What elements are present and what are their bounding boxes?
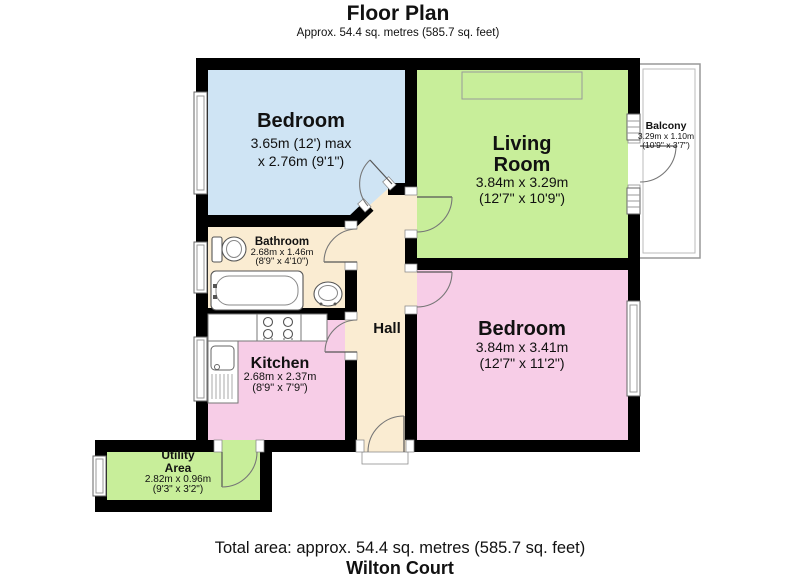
kitchen-dim2: (8'9" x 7'9") xyxy=(252,382,307,394)
page-subtitle: Approx. 54.4 sq. metres (585.7 sq. feet) xyxy=(297,27,500,39)
living-room-dim2: (12'7" x 10'9") xyxy=(479,190,565,206)
wall-top xyxy=(196,58,640,70)
wall-utility-right xyxy=(260,452,272,512)
wall-bedroom1-bathroom xyxy=(196,215,354,227)
bedroom2-dim2: (12'7" x 11'2") xyxy=(479,355,564,371)
bedroom2-window xyxy=(627,301,640,396)
wall-hall-living xyxy=(405,58,417,195)
utility-label-1: Utility xyxy=(161,448,195,462)
basin-icon xyxy=(314,282,342,306)
utility-window xyxy=(93,456,106,496)
bedroom2-dim1: 3.84m x 3.41m xyxy=(476,339,569,355)
wall-bottom-c xyxy=(406,440,640,452)
kitchen-sink-icon xyxy=(208,341,238,403)
utility-dim2: (9'3" x 3'2") xyxy=(153,484,203,495)
property-name: Wilton Court xyxy=(346,558,454,578)
kitchen-counter-icon xyxy=(208,314,327,341)
floor-plan-canvas: Floor Plan Approx. 54.4 sq. metres (585.… xyxy=(0,0,800,581)
bathroom-window xyxy=(194,242,207,293)
bedroom1-window xyxy=(194,92,207,194)
wall-hall-bedroom2 xyxy=(405,306,417,442)
balcony-dim2: (10'9" x 3'7") xyxy=(642,140,690,150)
wall-bottom-a xyxy=(95,440,222,452)
front-door-gap xyxy=(364,440,406,452)
hall-floor xyxy=(351,186,411,446)
front-door-threshold xyxy=(362,452,408,464)
kitchen-label: Kitchen xyxy=(251,355,310,372)
kitchen-door-gap xyxy=(345,320,357,352)
balcony-door-gap xyxy=(628,143,640,185)
page-title: Floor Plan xyxy=(347,2,450,25)
bedroom2-door-gap xyxy=(405,272,417,306)
bedroom1-dim2: x 2.76m (9'1") xyxy=(258,153,344,169)
wall-kitchen-right xyxy=(345,352,357,442)
utility-label-2: Area xyxy=(165,461,192,475)
wall-living-bedroom2 xyxy=(405,258,640,270)
room-fills xyxy=(101,64,634,506)
living-door-gap xyxy=(405,195,417,230)
living-room-label-2: Room xyxy=(494,154,551,176)
living-room-dim1: 3.84m x 3.29m xyxy=(476,174,569,190)
bathroom-dim2: (8'9" x 4'10") xyxy=(255,256,308,267)
utility-door-gap xyxy=(222,440,256,452)
hob-icon xyxy=(257,314,301,341)
hall-label: Hall xyxy=(373,320,401,337)
toilet-icon xyxy=(212,237,246,262)
bathtub-icon xyxy=(211,271,303,310)
living-room-label-1: Living xyxy=(493,133,552,155)
bedroom2-label: Bedroom xyxy=(478,318,566,340)
wall-utility-bottom xyxy=(95,500,272,512)
bedroom1-label: Bedroom xyxy=(257,110,345,132)
bedroom1-dim1: 3.65m (12') max xyxy=(251,135,352,151)
bathroom-door-gap xyxy=(345,229,357,262)
kitchen-window xyxy=(194,337,207,401)
balcony-window-lower xyxy=(627,188,640,214)
balcony-railing xyxy=(638,64,700,258)
total-area-text: Total area: approx. 54.4 sq. metres (585… xyxy=(215,539,586,557)
